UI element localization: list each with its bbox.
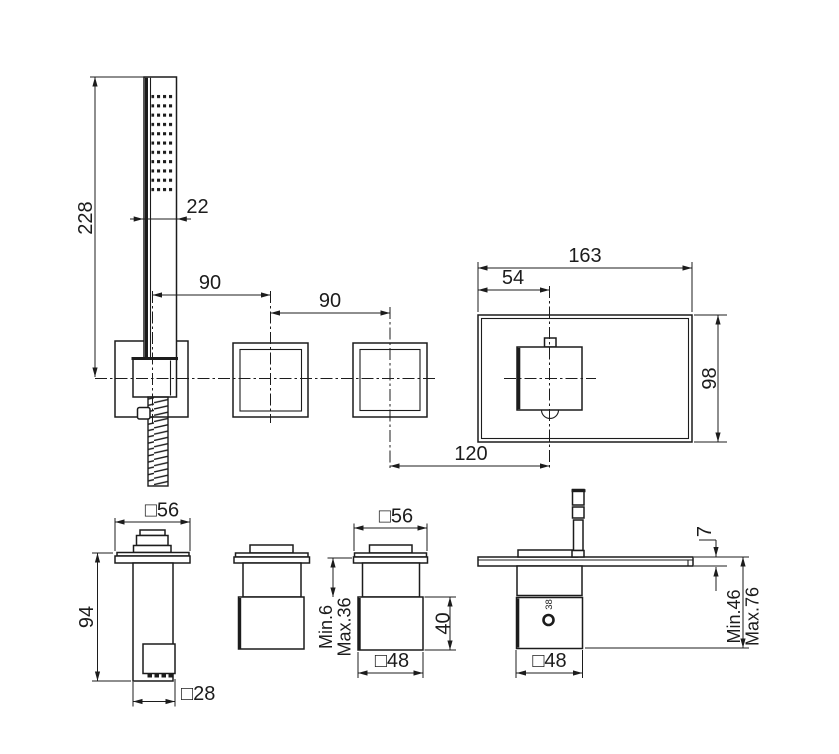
dim-label-54: 54 [502, 267, 524, 289]
dim-label-max36: Max.36 [334, 597, 354, 656]
spout-channel [518, 550, 578, 557]
dim-holder-height: 94 [76, 553, 131, 681]
dim-label-40: 40 [433, 612, 455, 634]
dim-label-94: 94 [76, 606, 98, 628]
holder-outlet [143, 644, 175, 674]
technical-drawing-canvas: 228 22 90 90 163 54 98 120 [0, 0, 839, 754]
dim-valve-flange-size: □56 [354, 506, 427, 552]
dim-label-sq48-valve: □48 [375, 650, 409, 672]
dim-label-120: 120 [454, 443, 487, 465]
dim-valve-to-valve: 90 [271, 290, 391, 313]
dim-label-22: 22 [186, 196, 208, 218]
spout-plate [478, 557, 693, 566]
dim-valve-to-handle: 120 [390, 443, 550, 466]
dim-valve-body-height: 40 [425, 597, 457, 650]
dim-spout-body-size: □48 [516, 650, 583, 678]
dim-label-98: 98 [699, 367, 721, 389]
mixer-dimension-drawing: 228 22 90 90 163 54 98 120 [0, 0, 839, 754]
dim-handshower-height: 228 [75, 77, 144, 377]
spout-body-upper [517, 566, 582, 596]
dim-label-min46: Min.46 [724, 589, 744, 643]
holder-clamp [132, 359, 179, 398]
dim-label-163: 163 [568, 245, 601, 267]
dim-holder-outlet-size: □28 [133, 679, 215, 707]
dim-spout-thickness: 7 [694, 526, 727, 591]
dim-plate-handle-offset: 54 [478, 267, 550, 290]
dim-label-7: 7 [694, 526, 716, 537]
dim-label-min6: Min.6 [316, 605, 336, 649]
spout-side-view: 38 [478, 490, 693, 649]
spray-face-dots [152, 91, 173, 194]
plate-handle-tab [545, 338, 557, 347]
dim-label-90b: 90 [319, 290, 341, 312]
temperature-38-label: 38 [544, 599, 555, 610]
dim-label-sq56-valve: □56 [379, 506, 413, 528]
dim-valve-body-size: □48 [358, 650, 423, 678]
valve-side-view-plain [234, 545, 310, 649]
dim-spout-depth: Min.46 Max.76 [585, 557, 762, 648]
dim-label-sq56-holder: □56 [145, 500, 179, 522]
holder-side-view [115, 530, 190, 681]
dim-label-sq28: □28 [181, 683, 215, 705]
dim-label-228: 228 [75, 201, 97, 234]
dim-label-sq48-spout: □48 [532, 650, 566, 672]
valve-side-view-dimensioned [354, 545, 428, 650]
dim-label-90a: 90 [199, 272, 221, 294]
dim-valve-depth: Min.6 Max.36 [316, 558, 355, 657]
dim-label-max76: Max.76 [742, 587, 762, 646]
spout-lever [572, 490, 586, 558]
holder-cap [140, 530, 165, 536]
hose-nub [138, 408, 151, 420]
dim-plate-height: 98 [694, 315, 727, 442]
